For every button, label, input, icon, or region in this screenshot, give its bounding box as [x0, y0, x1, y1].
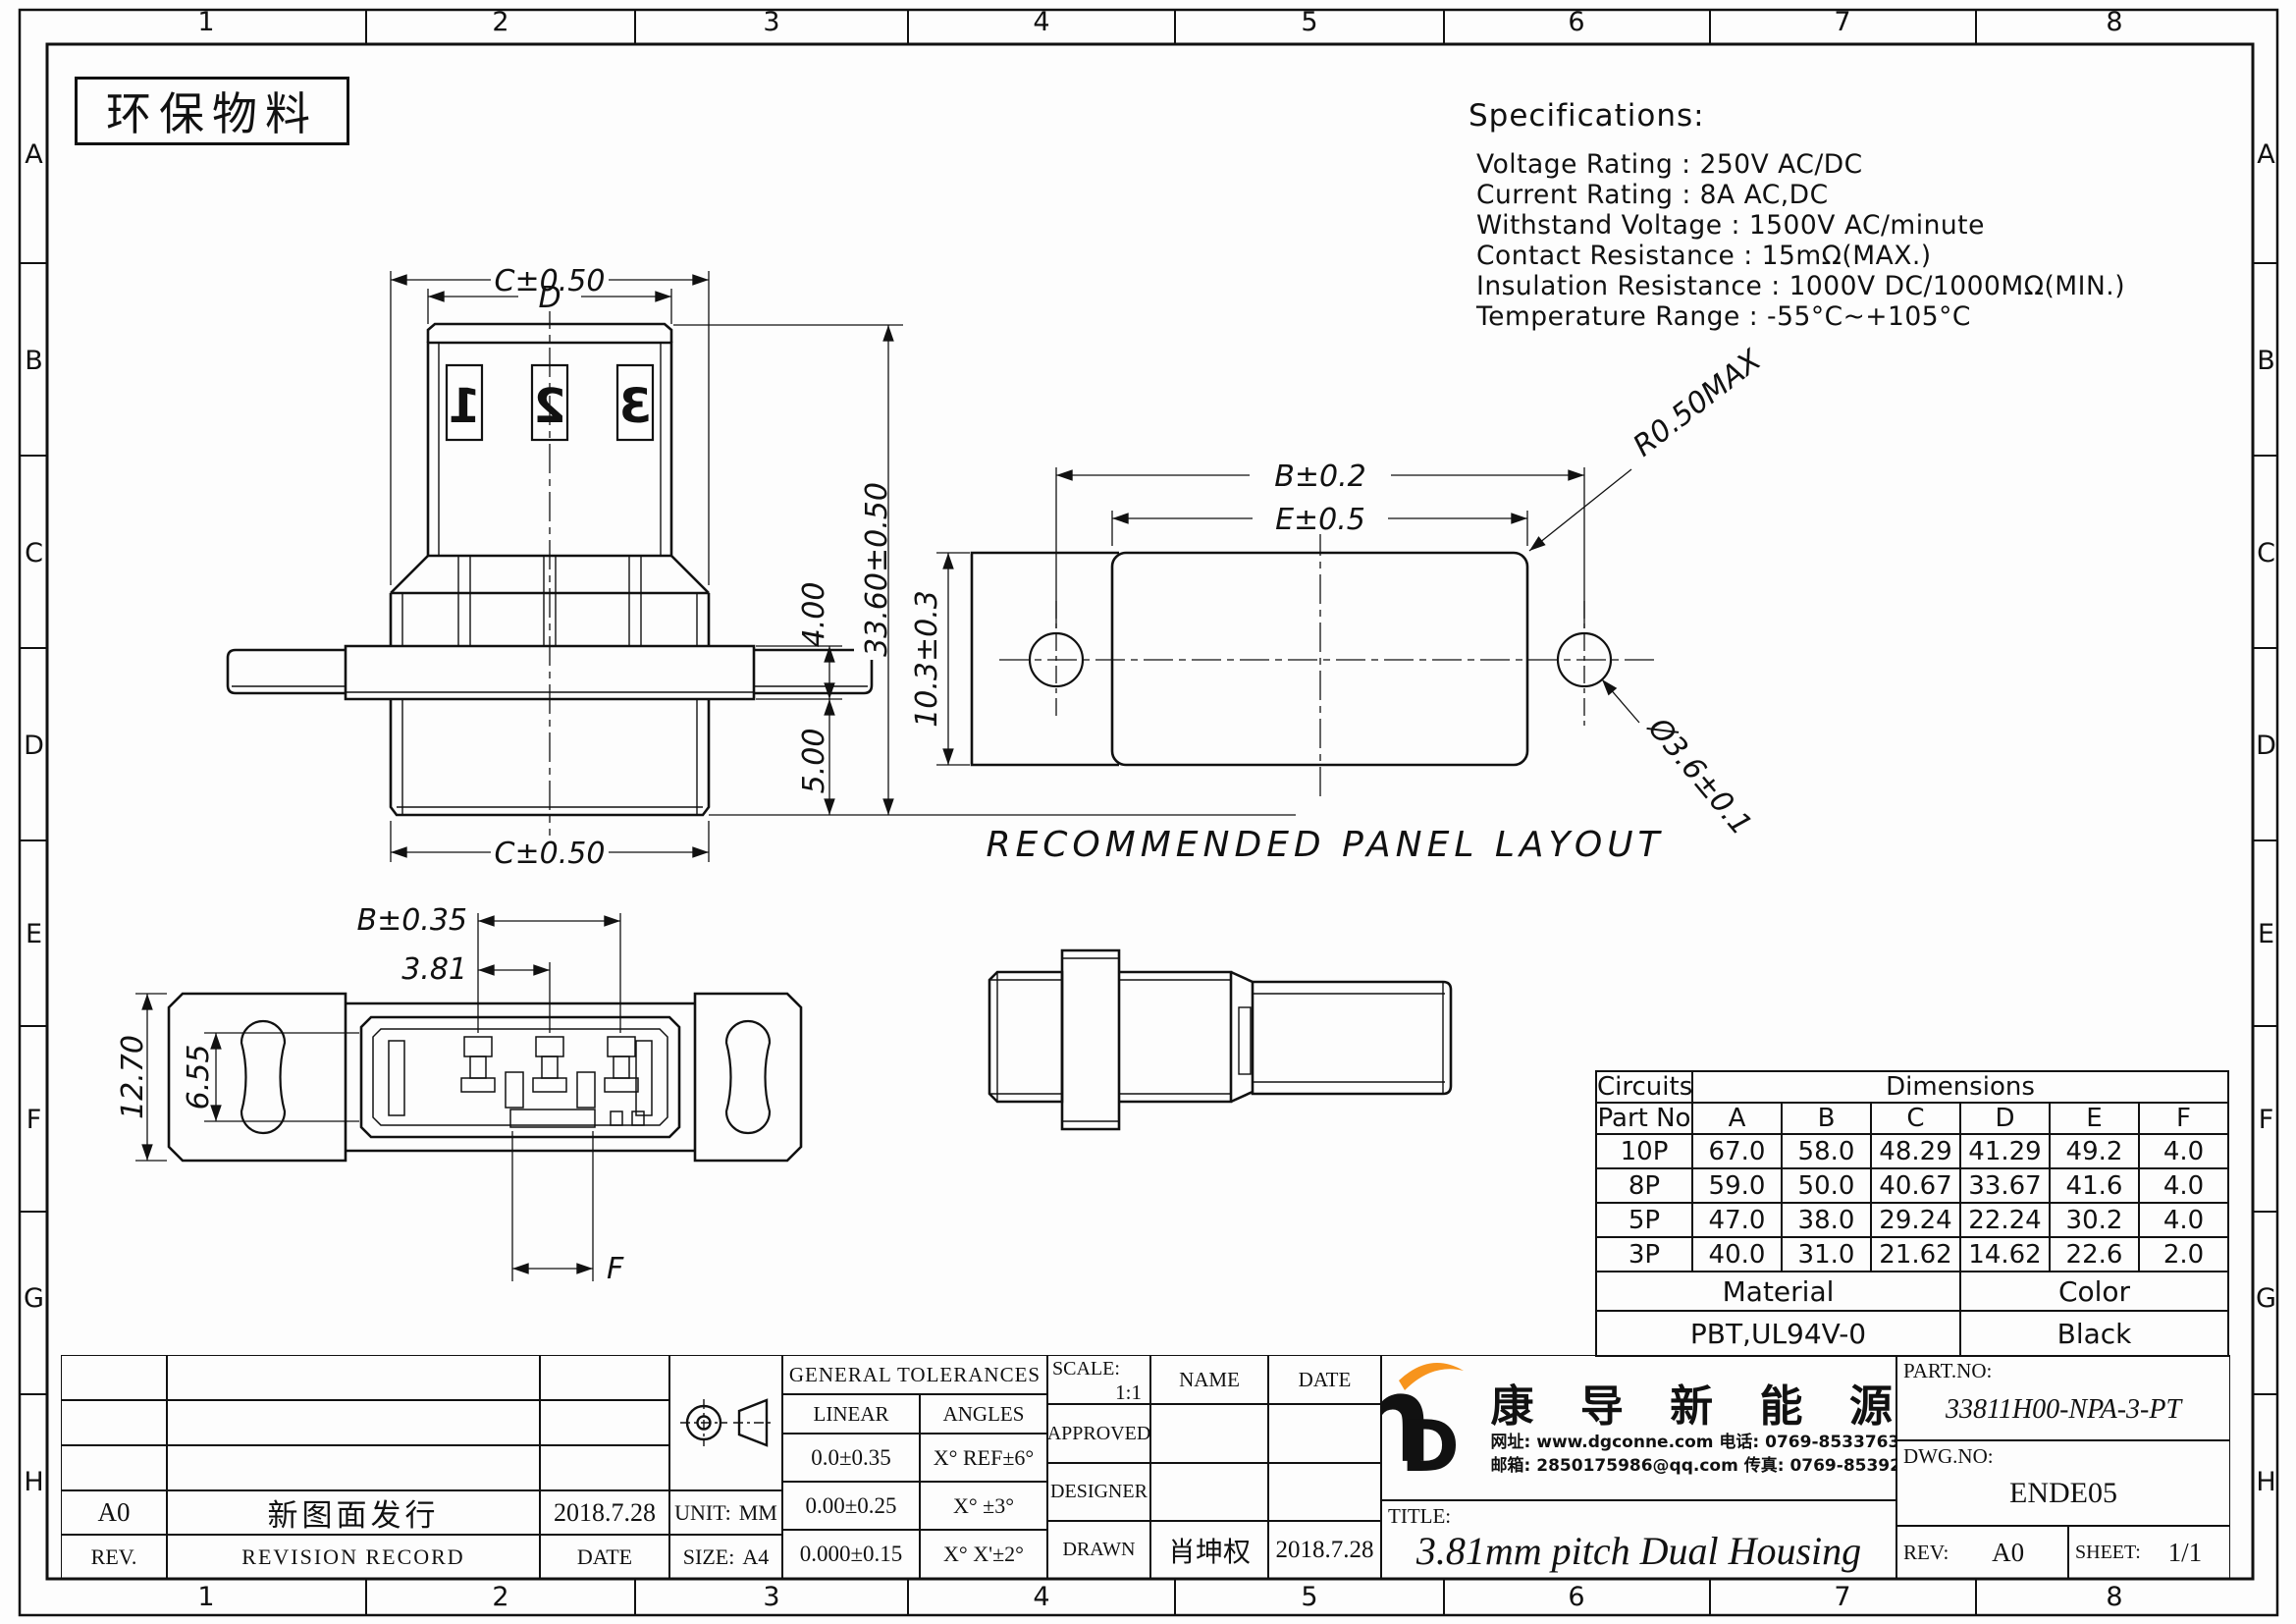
approved-label: APPROVED — [1047, 1404, 1150, 1463]
revision-empty-cell — [61, 1355, 167, 1400]
dim-hole: Ø3.6±0.1 — [1640, 710, 1759, 841]
date-header: DATE — [1268, 1355, 1381, 1404]
company-logo: h D — [1381, 1359, 1479, 1496]
projection-symbol-cell — [669, 1355, 782, 1490]
title-label: TITLE: — [1388, 1504, 1451, 1529]
sheet-label: SHEET: — [2069, 1542, 2141, 1564]
table-col-header: C — [1871, 1103, 1960, 1134]
angles-header: ANGLES — [920, 1394, 1047, 1434]
dim-b-plan: B±0.35 — [356, 903, 467, 938]
zone-row-right: F — [2254, 1105, 2278, 1135]
front-dimensions — [391, 263, 1296, 868]
dim-6-55: 6.55 — [182, 1045, 216, 1110]
zone-row-right: B — [2254, 346, 2278, 376]
plan-view: B±0.35 3.81 12.70 6.55 F — [116, 903, 801, 1286]
zone-col-top: 1 — [177, 7, 236, 37]
unit-cell: UNIT: MM — [669, 1490, 782, 1535]
color-value: Black — [1960, 1311, 2228, 1356]
drawing-title: 3.81mm pitch Dual Housing — [1416, 1528, 1861, 1574]
tolerance-angle-value: X° ±3° — [920, 1482, 1047, 1530]
rev-value: A0 — [1992, 1538, 2024, 1568]
company-contact-line2: 邮箱: 2850175986@qq.com 传真: 0769-85392827 — [1491, 1454, 1896, 1478]
company-block: h D 康 导 新 能 源 网址: www.dgconne.com 电话: 07… — [1381, 1355, 1896, 1500]
dim-f: F — [607, 1252, 624, 1286]
zone-col-top: 8 — [2085, 7, 2144, 37]
zone-col-top: 6 — [1547, 7, 1606, 37]
dim-c-bottom: C±0.50 — [495, 837, 606, 871]
table-cell: 3P — [1596, 1237, 1692, 1272]
zone-row-right: H — [2254, 1467, 2278, 1497]
table-cell: 4.0 — [2139, 1203, 2228, 1237]
part-no-value: 33811H00-NPA-3-PT — [1946, 1394, 2181, 1426]
zone-row-left: B — [21, 346, 47, 376]
revision-entry-date: 2018.7.28 — [540, 1490, 669, 1535]
spec-line: Contact Resistance : 15mΩ(MAX.) — [1468, 241, 2264, 271]
specifications-title: Specifications: — [1468, 98, 2264, 134]
zone-col-top: 5 — [1280, 7, 1339, 37]
company-info: 康 导 新 能 源 网址: www.dgconne.com 电话: 0769-8… — [1479, 1378, 1896, 1478]
dim-radius: R0.50MAX — [1627, 343, 1769, 464]
spec-line: Withstand Voltage : 1500V AC/minute — [1468, 210, 2264, 241]
approved-name-cell — [1150, 1404, 1268, 1463]
designer-date-cell — [1268, 1463, 1381, 1521]
approved-date-cell — [1268, 1404, 1381, 1463]
rev-header: REV. — [61, 1535, 167, 1579]
table-cell: 30.2 — [2050, 1203, 2139, 1237]
material-value: PBT,UL94V-0 — [1596, 1311, 1960, 1356]
name-header: NAME — [1150, 1355, 1268, 1404]
table-cell: 48.29 — [1871, 1134, 1960, 1168]
zone-col-bottom: 3 — [742, 1582, 801, 1612]
table-cell: 40.67 — [1871, 1168, 1960, 1203]
table-cell: 4.0 — [2139, 1134, 2228, 1168]
zone-col-top: 3 — [742, 7, 801, 37]
zone-row-left: G — [21, 1283, 47, 1314]
dwg-no-value: ENDE05 — [2009, 1477, 2117, 1510]
zone-row-right: E — [2254, 919, 2278, 949]
table-header-partno: Part No — [1596, 1103, 1692, 1134]
third-angle-projection-icon — [670, 1364, 781, 1482]
zone-col-bottom: 2 — [471, 1582, 530, 1612]
revision-empty-cell — [167, 1400, 540, 1445]
title-block: A0 新图面发行 2018.7.28 REV. REVISION RECORD … — [61, 1355, 2230, 1579]
tolerance-linear-value: 0.00±0.25 — [782, 1482, 920, 1530]
zone-col-bottom: 1 — [177, 1582, 236, 1612]
table-cell: 38.0 — [1782, 1203, 1871, 1237]
table-col-header: D — [1960, 1103, 2050, 1134]
zone-row-right: G — [2254, 1283, 2278, 1314]
zone-col-bottom: 4 — [1012, 1582, 1071, 1612]
table-row: 10P 67.0 58.0 48.29 41.29 49.2 4.0 — [1596, 1134, 2228, 1168]
table-cell: 29.24 — [1871, 1203, 1960, 1237]
dim-4: 4.00 — [797, 582, 831, 648]
table-cell: 59.0 — [1692, 1168, 1782, 1203]
table-cell: 21.62 — [1871, 1237, 1960, 1272]
zone-row-left: H — [21, 1467, 47, 1497]
table-cell: 40.0 — [1692, 1237, 1782, 1272]
zone-col-top: 2 — [471, 7, 530, 37]
spec-line: Voltage Rating : 250V AC/DC — [1468, 149, 2264, 180]
company-name: 康 导 新 能 源 — [1491, 1383, 1896, 1431]
tolerance-linear-value: 0.000±0.15 — [782, 1530, 920, 1579]
front-view: 1 2 3 C±0.50 — [228, 263, 1296, 871]
specifications-block: Specifications: Voltage Rating : 250V AC… — [1468, 98, 2264, 332]
zone-col-bottom: 6 — [1547, 1582, 1606, 1612]
dim-12-70: 12.70 — [116, 1035, 150, 1119]
zone-row-left: D — [21, 731, 47, 761]
table-col-header: A — [1692, 1103, 1782, 1134]
zone-row-left: E — [21, 919, 47, 949]
table-cell: 4.0 — [2139, 1168, 2228, 1203]
table-cell: 14.62 — [1960, 1237, 2050, 1272]
size-value: A4 — [742, 1544, 769, 1570]
table-row: 5P 47.0 38.0 29.24 22.24 30.2 4.0 — [1596, 1203, 2228, 1237]
revision-empty-cell — [167, 1445, 540, 1490]
spec-line: Temperature Range : -55°C~+105°C — [1468, 301, 2264, 332]
panel-layout-title: RECOMMENDED PANEL LAYOUT — [986, 825, 1664, 865]
table-cell: 33.67 — [1960, 1168, 2050, 1203]
zone-col-bottom: 7 — [1813, 1582, 1872, 1612]
size-label: SIZE: — [683, 1544, 735, 1570]
table-cell: 58.0 — [1782, 1134, 1871, 1168]
eco-material-stamp: 环保物料 — [75, 77, 349, 145]
table-cell: 22.24 — [1960, 1203, 2050, 1237]
date-header: DATE — [540, 1535, 669, 1579]
title-cell: TITLE: 3.81mm pitch Dual Housing — [1381, 1500, 1896, 1579]
dimensions-table: Circuits Dimensions Part No A B C D E F … — [1595, 1070, 2229, 1357]
part-no-cell: PART.NO: 33811H00-NPA-3-PT — [1896, 1355, 2230, 1440]
dim-pitch: 3.81 — [401, 952, 467, 987]
zone-row-left: F — [21, 1105, 47, 1135]
tolerance-angle-value: X° X'±2° — [920, 1530, 1047, 1579]
sheet-value: 1/1 — [2168, 1538, 2203, 1568]
dim-d: D — [538, 281, 561, 315]
company-contact-line1: 网址: www.dgconne.com 电话: 0769-85337633 — [1491, 1431, 1896, 1454]
scale-cell: SCALE: 1:1 — [1047, 1355, 1150, 1404]
designer-name-cell — [1150, 1463, 1268, 1521]
panel-layout-view: B±0.2 E±0.5 10.3±0.3 R0.50MAX Ø3.6±0.1 R… — [905, 343, 1769, 865]
spec-line: Insulation Resistance : 1000V DC/1000MΩ(… — [1468, 271, 2264, 301]
dim-e-panel: E±0.5 — [1275, 503, 1365, 537]
size-cell: SIZE: A4 — [669, 1535, 782, 1579]
zone-row-right: C — [2254, 538, 2278, 568]
revision-empty-cell — [61, 1445, 167, 1490]
table-cell: 67.0 — [1692, 1134, 1782, 1168]
table-cell: 47.0 — [1692, 1203, 1782, 1237]
side-view — [989, 950, 1451, 1129]
table-cell: 8P — [1596, 1168, 1692, 1203]
zone-col-top: 7 — [1813, 7, 1872, 37]
drawn-label: DRAWN — [1047, 1521, 1150, 1579]
revision-entry-rev: A0 — [61, 1490, 167, 1535]
table-col-header: E — [2050, 1103, 2139, 1134]
dim-height: 33.60±0.50 — [860, 482, 894, 657]
table-header-circuits: Circuits — [1596, 1071, 1692, 1103]
pin-1-label: 1 — [448, 379, 480, 434]
table-cell: 10P — [1596, 1134, 1692, 1168]
dim-h-panel: 10.3±0.3 — [910, 590, 944, 728]
revision-empty-cell — [61, 1400, 167, 1445]
table-cell: 22.6 — [2050, 1237, 2139, 1272]
spec-line: Current Rating : 8A AC,DC — [1468, 180, 2264, 210]
table-header-dimensions: Dimensions — [1692, 1071, 2228, 1103]
tolerance-angle-value: X° REF±6° — [920, 1434, 1047, 1482]
table-row: 8P 59.0 50.0 40.67 33.67 41.6 4.0 — [1596, 1168, 2228, 1203]
table-cell: 41.29 — [1960, 1134, 2050, 1168]
dim-5: 5.00 — [797, 729, 831, 794]
revision-empty-cell — [540, 1355, 669, 1400]
table-cell: 31.0 — [1782, 1237, 1871, 1272]
rev-cell: REV: A0 — [1896, 1526, 2068, 1579]
revision-record-header: REVISION RECORD — [167, 1535, 540, 1579]
pin-3-label: 3 — [618, 379, 651, 434]
hd-logo-icon: h D — [1381, 1359, 1479, 1496]
material-header: Material — [1596, 1272, 1960, 1311]
revision-empty-cell — [540, 1400, 669, 1445]
zone-row-right: D — [2254, 731, 2278, 761]
dwg-no-cell: DWG.NO: ENDE05 — [1896, 1440, 2230, 1526]
table-cell: 49.2 — [2050, 1134, 2139, 1168]
revision-empty-cell — [167, 1355, 540, 1400]
tolerance-linear-value: 0.0±0.35 — [782, 1434, 920, 1482]
designer-label: DESIGNER — [1047, 1463, 1150, 1521]
general-tolerances-header: GENERAL TOLERANCES — [782, 1355, 1047, 1394]
dim-b-panel: B±0.2 — [1274, 460, 1365, 494]
table-row: 3P 40.0 31.0 21.62 14.62 22.6 2.0 — [1596, 1237, 2228, 1272]
unit-value: MM — [739, 1500, 777, 1526]
table-col-header: F — [2139, 1103, 2228, 1134]
zone-row-left: A — [21, 139, 47, 170]
scale-value: 1:1 — [1115, 1380, 1149, 1404]
color-header: Color — [1960, 1272, 2228, 1311]
drawing-sheet: 1 2 3 C±0.50 — [0, 0, 2296, 1624]
table-col-header: B — [1782, 1103, 1871, 1134]
table-cell: 50.0 — [1782, 1168, 1871, 1203]
part-no-label: PART.NO: — [1903, 1359, 1992, 1383]
table-cell: 41.6 — [2050, 1168, 2139, 1203]
table-cell: 2.0 — [2139, 1237, 2228, 1272]
dwg-no-label: DWG.NO: — [1903, 1444, 1994, 1469]
rev-label: REV: — [1897, 1541, 1949, 1565]
sheet-cell: SHEET: 1/1 — [2068, 1526, 2230, 1579]
logo-d: D — [1401, 1405, 1460, 1488]
scale-label: SCALE: — [1048, 1356, 1120, 1380]
revision-empty-cell — [540, 1445, 669, 1490]
drawn-name-cell: 肖坤权 — [1150, 1521, 1268, 1579]
table-cell: 5P — [1596, 1203, 1692, 1237]
drawn-date-cell: 2018.7.28 — [1268, 1521, 1381, 1579]
zone-col-top: 4 — [1012, 7, 1071, 37]
revision-entry-desc: 新图面发行 — [167, 1490, 540, 1535]
zone-col-bottom: 5 — [1280, 1582, 1339, 1612]
zone-col-bottom: 8 — [2085, 1582, 2144, 1612]
unit-label: UNIT: — [674, 1500, 731, 1526]
linear-header: LINEAR — [782, 1394, 920, 1434]
zone-row-left: C — [21, 538, 47, 568]
